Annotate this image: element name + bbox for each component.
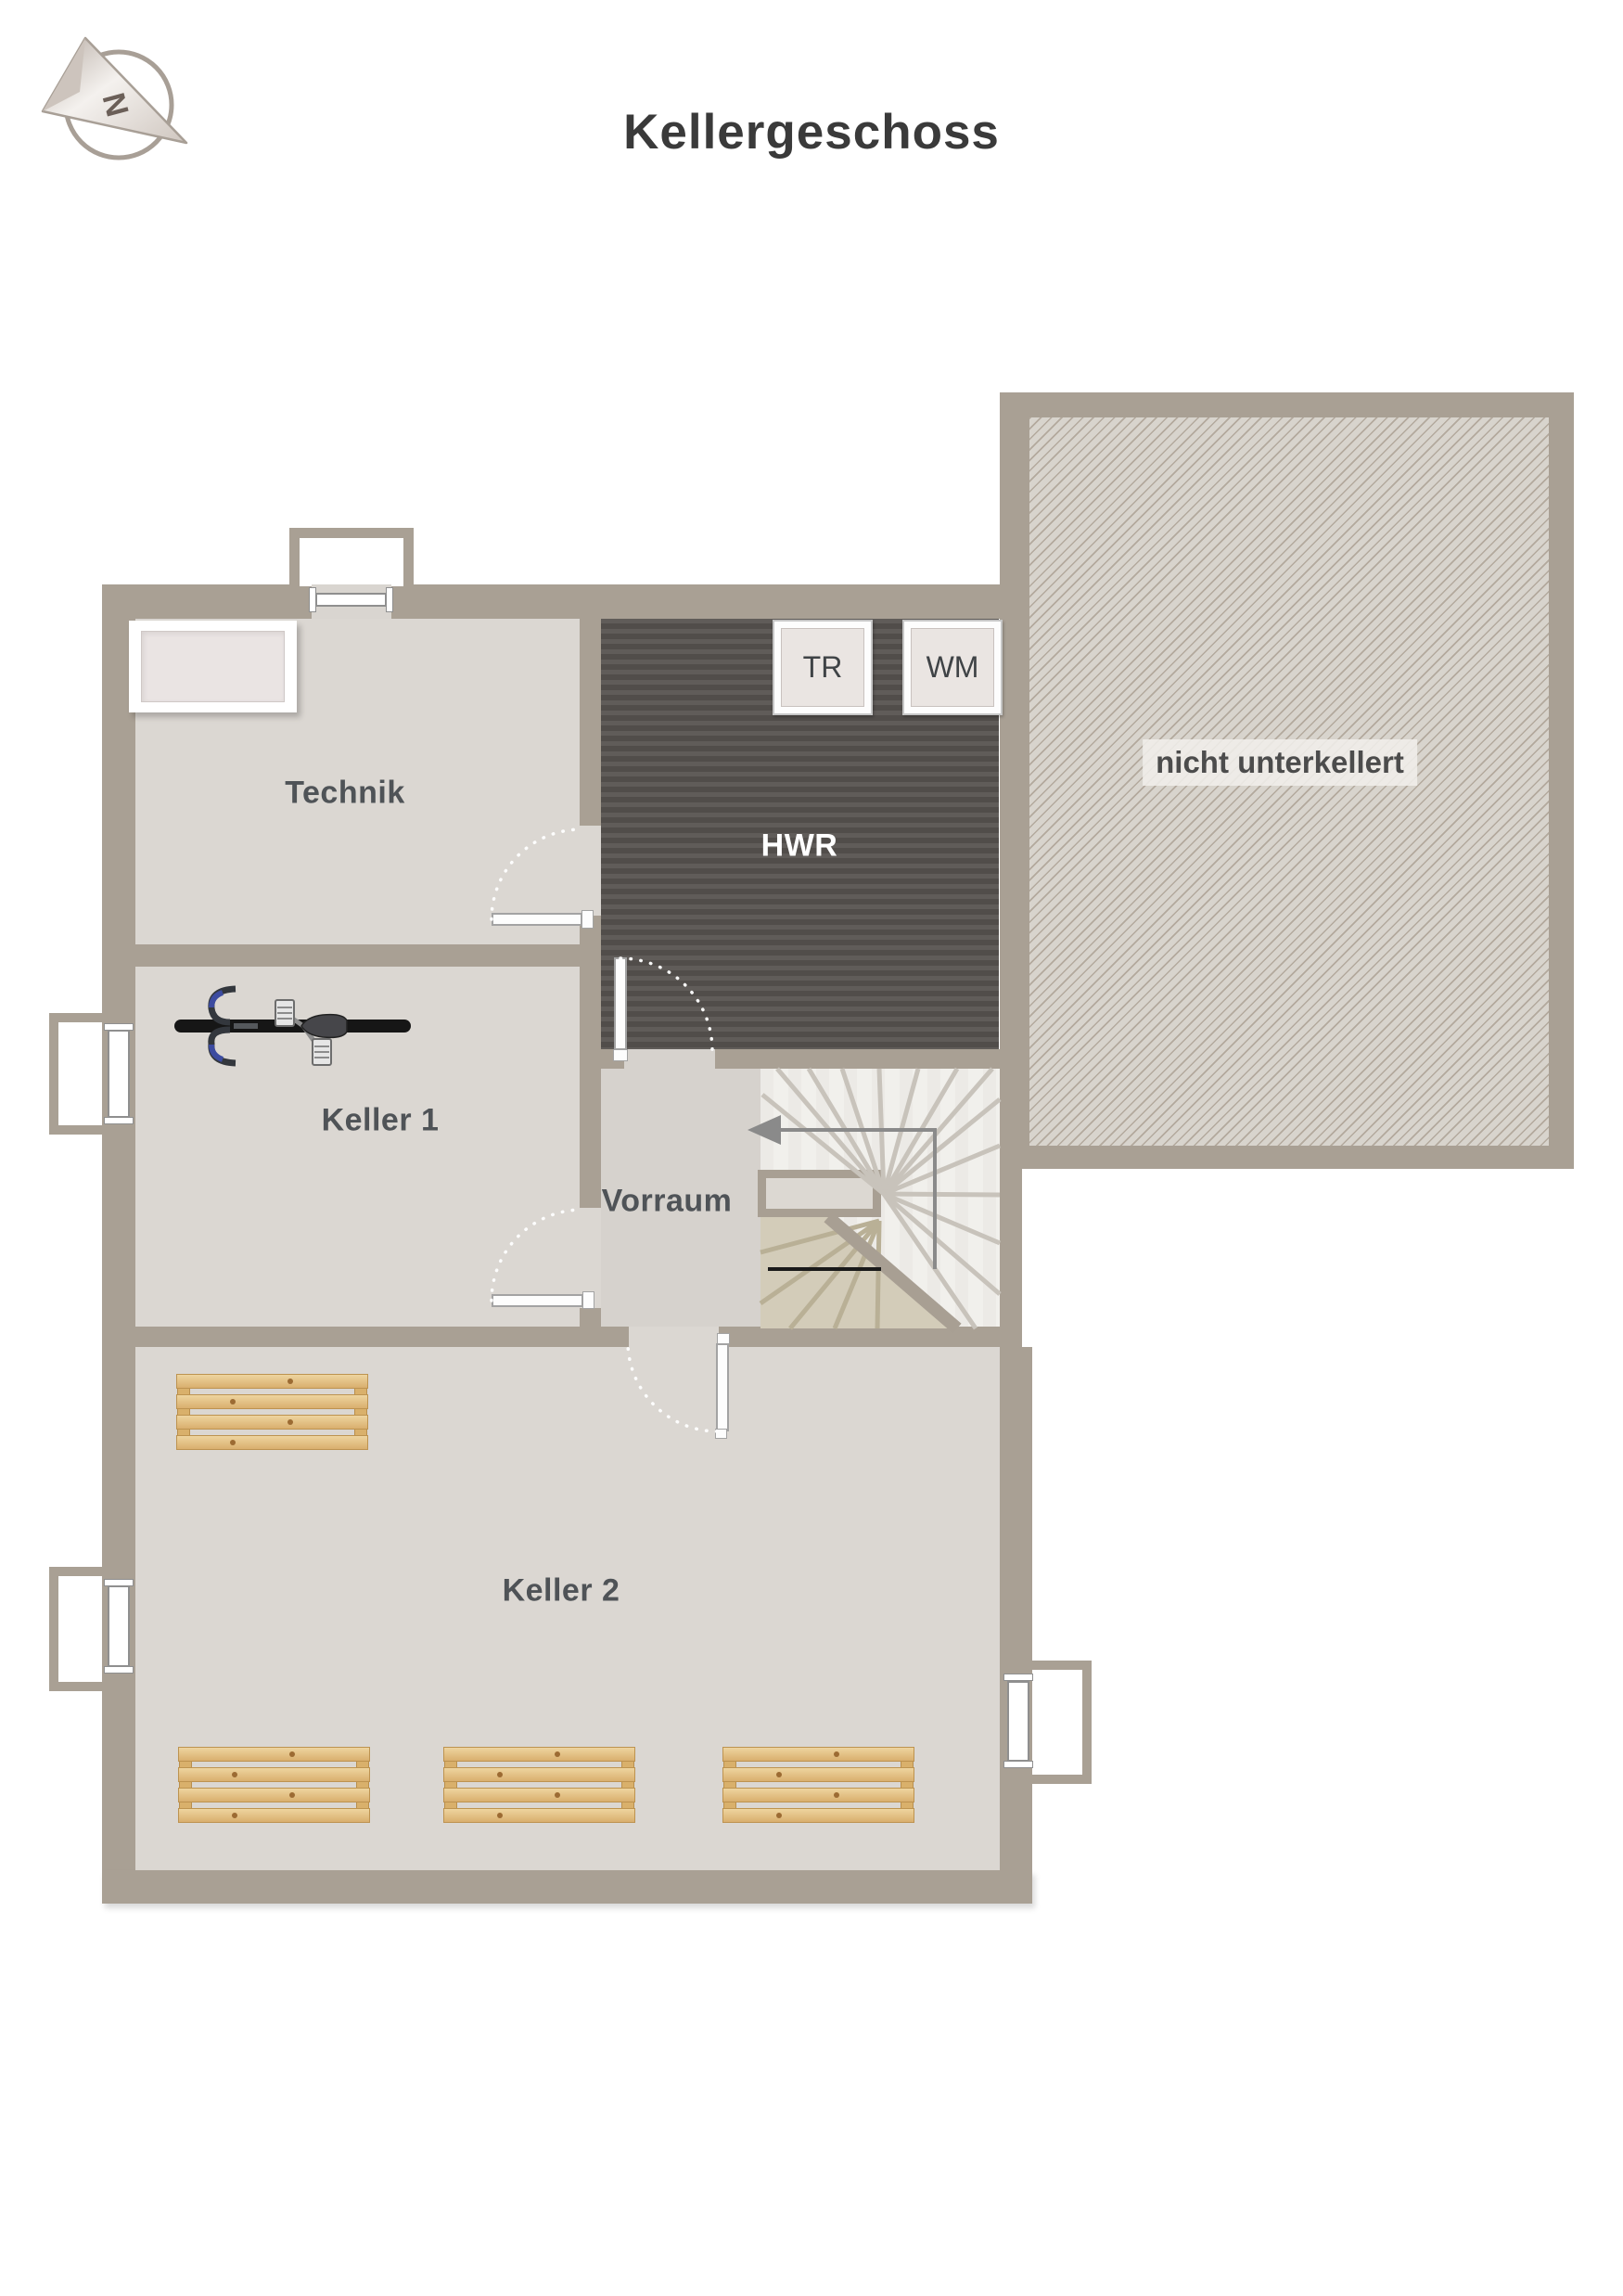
technik-window-box-glass [141,631,285,702]
shelf-plank [176,1415,368,1430]
area-note-label: nicht unterkellert [1143,739,1417,786]
wall-bottom [102,1870,1032,1904]
shelf-plank [176,1374,368,1389]
window-keller2-right-cap-top [1003,1674,1033,1681]
door-keller2 [716,1343,729,1431]
room-label-hwr: HWR [761,828,838,865]
window-keller2-right-cap-bottom [1003,1761,1033,1768]
appliance-dryer-label: TR [781,628,864,707]
wall-left [102,584,135,1904]
lightwell-top [289,528,414,586]
appliance-dryer: TR [773,620,873,715]
door-keller2-jamb-top [717,1333,730,1344]
door-hwr-jamb [613,1049,628,1061]
shelf-keller2-topleft [176,1374,368,1450]
stair-landing [758,1170,881,1217]
door-keller2-jamb-bottom [715,1429,727,1439]
door-hwr [614,957,627,1050]
wall-keller2-west [135,1327,629,1347]
wall-keller2-east [719,1327,1000,1347]
shelf-plank [722,1808,914,1823]
shelf-plank [176,1394,368,1409]
floor-keller1 [135,967,601,1327]
door-keller1 [492,1294,583,1307]
technik-window-box [129,621,297,712]
wall-block-top [1000,392,1574,417]
window-technik-top-cap-left [309,587,316,612]
wall-hwr-stair [715,1049,1000,1069]
lightwell-left-keller1 [49,1013,102,1135]
wall-block-bottom [1000,1146,1574,1169]
window-technik-top [315,593,387,607]
door-technik-jamb [581,910,594,929]
door-keller1-jamb [582,1291,594,1309]
shelf-plank [178,1747,370,1762]
window-keller2-left [108,1585,130,1667]
shelf-plank [722,1747,914,1762]
lightwell-left-keller2 [49,1567,102,1691]
shelf-plank [176,1435,368,1450]
shelf-plank [722,1767,914,1782]
shelf-plank [178,1808,370,1823]
wall-block-right [1549,392,1574,1169]
wall-right-upper [1000,392,1029,1169]
window-keller1-left [108,1030,130,1118]
floorplan-canvas: Kellergeschoss TR [0,0,1623,2296]
page-title: Kellergeschoss [0,104,1623,160]
shelf-keller2-bottom-1 [178,1747,370,1823]
shelf-plank [443,1767,635,1782]
door-technik [492,913,582,926]
window-keller2-right [1007,1681,1029,1762]
appliance-washer-label: WM [911,628,994,707]
window-keller1-left-cap-bottom [104,1117,134,1124]
room-label-technik: Technik [285,776,404,812]
shelf-plank [443,1808,635,1823]
shelf-keller2-bottom-2 [443,1747,635,1823]
wall-keller1-vorraum [580,967,601,1208]
window-keller2-left-cap-bottom [104,1666,134,1674]
shelf-plank [178,1788,370,1802]
wall-right-stair [1000,1169,1022,1347]
lightwell-right-keller2 [1032,1661,1092,1784]
window-technik-top-cap-right [386,587,393,612]
shelf-plank [722,1788,914,1802]
wall-top [102,584,1029,619]
window-keller1-left-cap-top [104,1023,134,1031]
shelf-plank [443,1788,635,1802]
room-label-keller1: Keller 1 [322,1103,440,1139]
wall-keller1-vorraum-stub [580,1308,601,1327]
shelf-plank [443,1747,635,1762]
wall-technik-keller1 [135,944,601,967]
wall-technik-hwr-upper [580,619,601,826]
appliance-washer: WM [902,620,1003,715]
shelf-plank [178,1767,370,1782]
room-label-vorraum: Vorraum [602,1184,733,1220]
window-keller2-left-cap-top [104,1579,134,1586]
wall-right-keller2 [1000,1347,1032,1870]
room-label-keller2: Keller 2 [503,1573,620,1610]
shelf-keller2-bottom-3 [722,1747,914,1823]
